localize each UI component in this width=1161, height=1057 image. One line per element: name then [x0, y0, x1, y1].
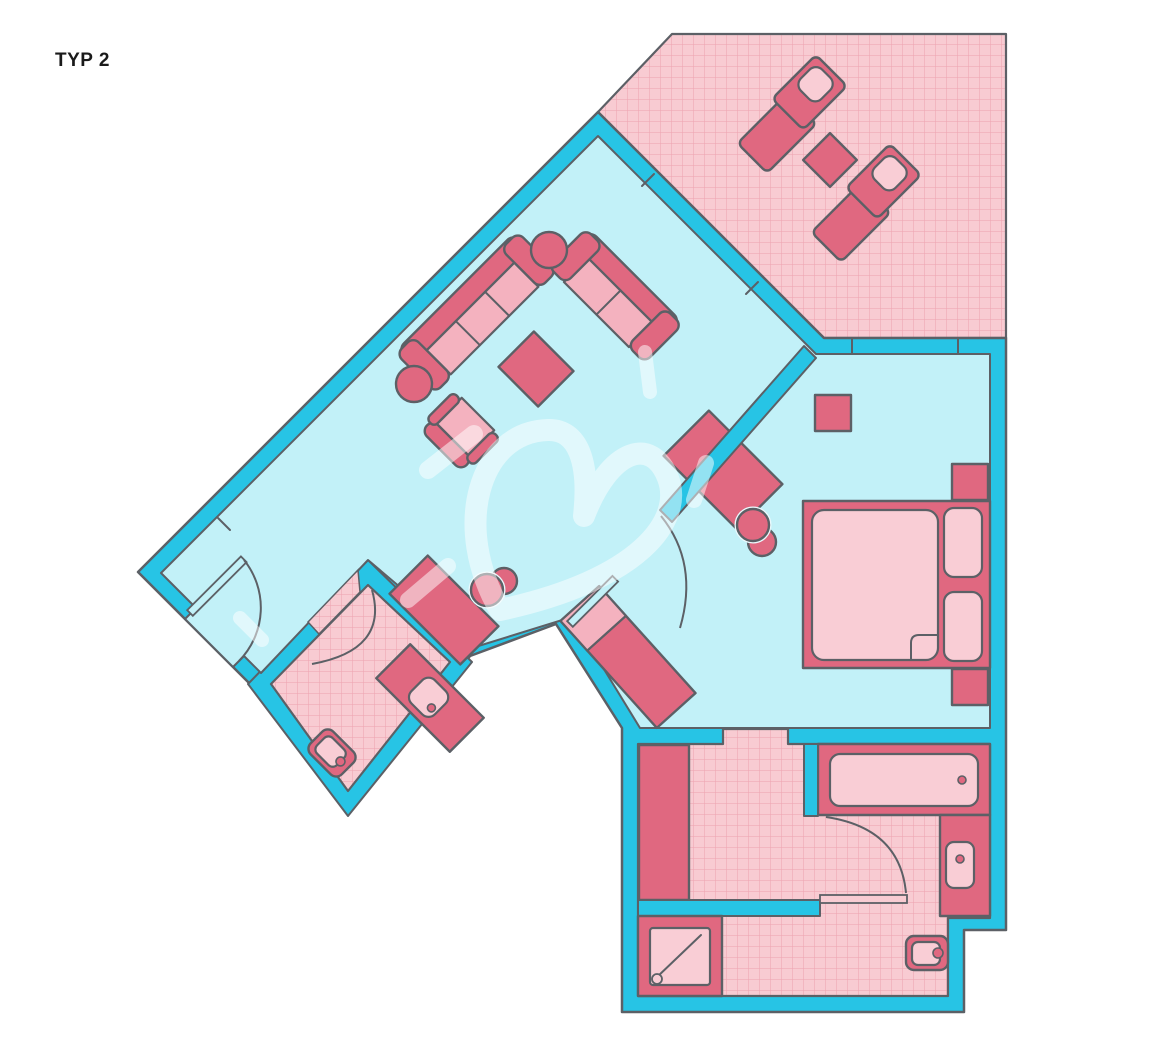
side-table-2 [396, 366, 432, 402]
floor-plan-svg [0, 0, 1161, 1057]
highlight-dash [497, 668, 522, 690]
floor-plan-page: TYP 2 [0, 0, 1161, 1057]
mattress [812, 510, 938, 660]
bathroom-cabinet [639, 745, 689, 900]
pillow-1 [944, 508, 982, 577]
stool [815, 395, 851, 431]
bathroom [638, 729, 990, 996]
bathtub-drain-dot [958, 776, 966, 784]
bathroom-stub-wall [804, 744, 818, 816]
washbasin [946, 842, 974, 888]
toilet [906, 936, 948, 970]
bathtub [830, 754, 978, 806]
shower-drain [652, 974, 662, 984]
highlight-dash [694, 463, 706, 500]
side-table-1 [531, 232, 567, 268]
pillow-2 [944, 592, 982, 661]
bathroom-door-leaf [820, 895, 907, 903]
bathroom-inner-wall [638, 900, 820, 916]
washbasin-faucet-dot [956, 855, 964, 863]
nightstand-2 [952, 669, 988, 705]
desk-chair-seat-top [737, 509, 769, 541]
nightstand-1 [952, 464, 988, 500]
toilet-notch [933, 948, 943, 958]
highlight-dash [645, 352, 650, 392]
